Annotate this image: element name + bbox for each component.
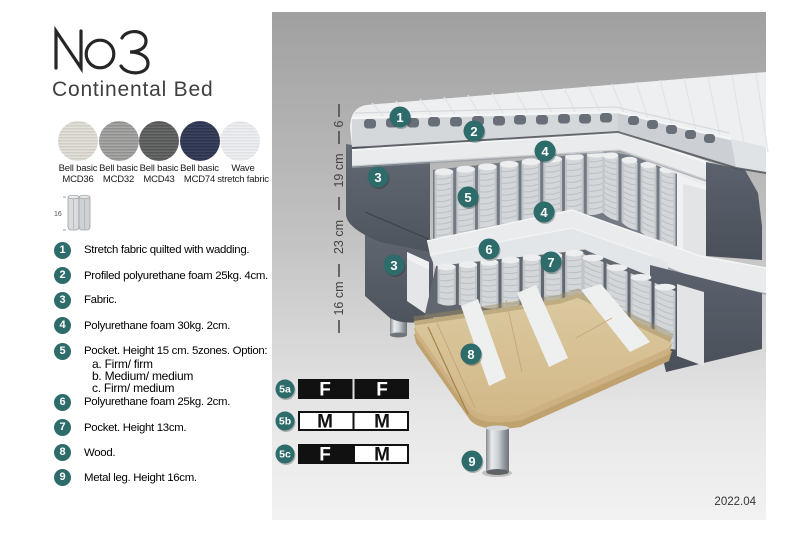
svg-text:5a: 5a <box>279 384 291 396</box>
svg-text:3: 3 <box>374 170 381 185</box>
svg-text:F: F <box>376 380 388 401</box>
svg-text:7: 7 <box>547 255 554 270</box>
svg-text:M: M <box>374 445 390 466</box>
svg-text:5b: 5b <box>279 416 291 428</box>
svg-text:2022.04: 2022.04 <box>714 496 756 508</box>
svg-text:4: 4 <box>541 144 549 159</box>
svg-text:6: 6 <box>485 242 492 257</box>
svg-text:16 cm: 16 cm <box>332 281 346 315</box>
svg-text:F: F <box>319 380 331 401</box>
svg-text:3: 3 <box>390 258 397 273</box>
svg-text:5c: 5c <box>279 449 291 461</box>
svg-text:1: 1 <box>396 110 403 125</box>
svg-text:4: 4 <box>540 205 548 220</box>
svg-text:9: 9 <box>468 454 475 469</box>
svg-text:6: 6 <box>332 120 346 127</box>
svg-text:8: 8 <box>467 347 474 362</box>
svg-text:19 cm: 19 cm <box>332 153 346 187</box>
svg-text:F: F <box>319 445 331 466</box>
svg-text:23 cm: 23 cm <box>332 220 346 254</box>
svg-text:2: 2 <box>470 124 477 139</box>
svg-text:5: 5 <box>464 190 471 205</box>
svg-text:M: M <box>374 412 390 433</box>
svg-text:M: M <box>317 412 333 433</box>
